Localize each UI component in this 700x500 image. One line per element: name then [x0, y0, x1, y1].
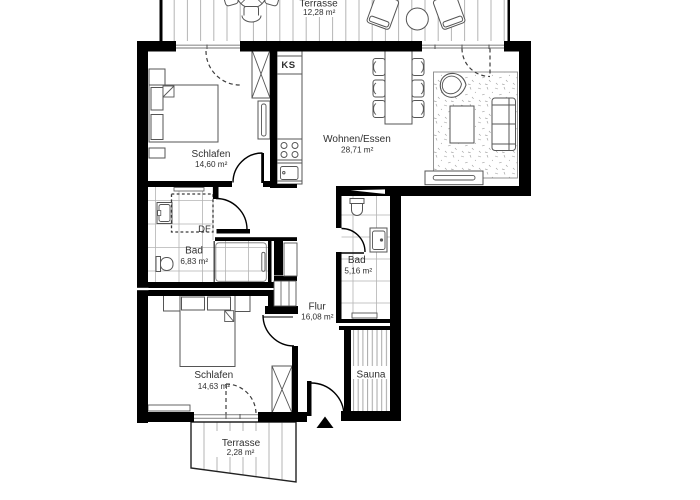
svg-text:Flur: Flur — [308, 301, 326, 312]
svg-text:Bad: Bad — [185, 245, 203, 256]
svg-text:Schlafen: Schlafen — [194, 370, 233, 381]
svg-text:Wohnen/Essen: Wohnen/Essen — [323, 134, 391, 145]
svg-text:2,28 m²: 2,28 m² — [227, 448, 255, 457]
svg-text:KS: KS — [281, 60, 295, 71]
svg-text:Schlafen: Schlafen — [192, 149, 231, 160]
svg-text:28,71 m²: 28,71 m² — [341, 145, 374, 154]
svg-text:16,08 m²: 16,08 m² — [301, 313, 334, 322]
svg-text:12,28 m²: 12,28 m² — [303, 8, 336, 17]
svg-text:14,60 m²: 14,60 m² — [195, 160, 228, 169]
svg-text:5,16 m²: 5,16 m² — [344, 266, 372, 275]
svg-text:DF: DF — [198, 224, 211, 235]
svg-text:6,83 m²: 6,83 m² — [180, 257, 208, 266]
svg-text:Sauna: Sauna — [357, 369, 386, 380]
svg-text:Bad: Bad — [348, 255, 366, 266]
svg-text:14,63 m²: 14,63 m² — [198, 382, 231, 391]
